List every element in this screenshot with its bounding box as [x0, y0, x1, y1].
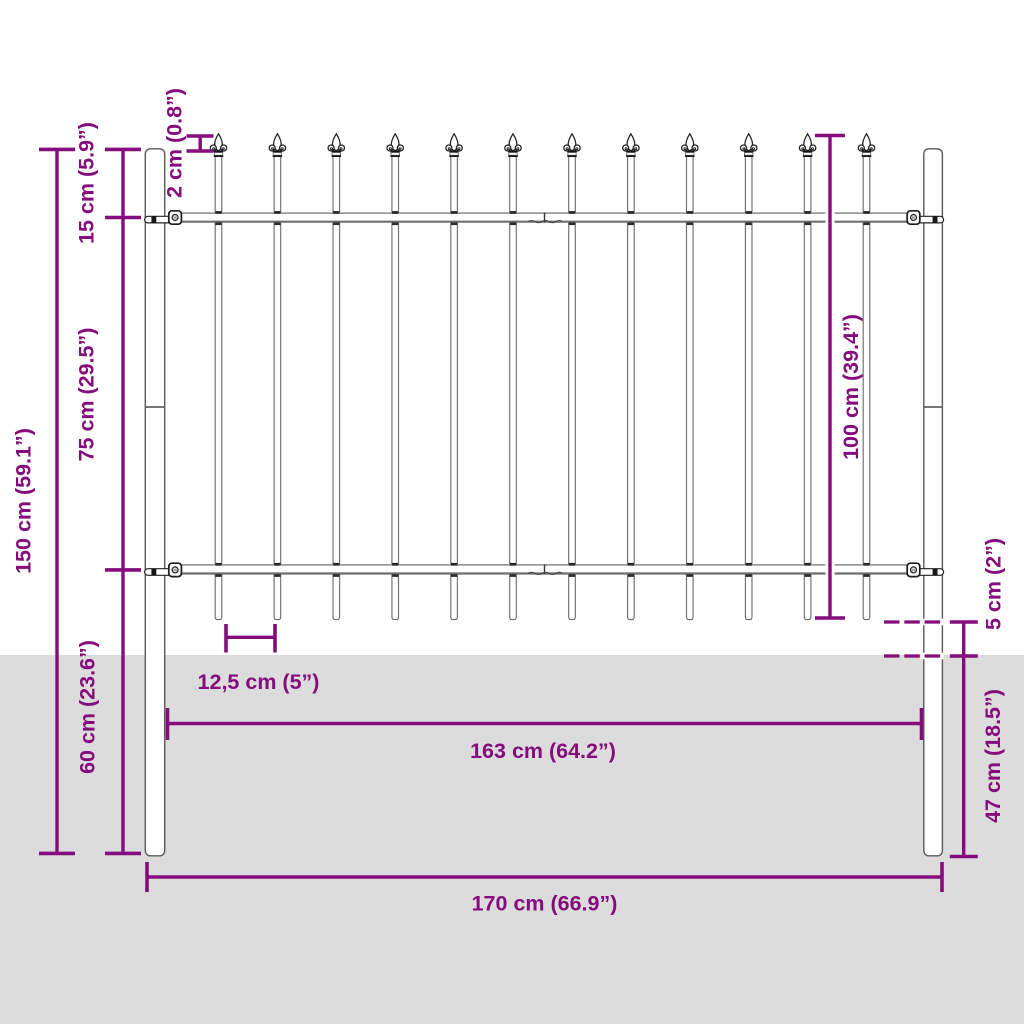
svg-text:163 cm (64.2”): 163 cm (64.2”): [470, 739, 616, 763]
svg-text:100 cm (39.4”): 100 cm (39.4”): [839, 314, 863, 460]
svg-text:5 cm (2”): 5 cm (2”): [982, 538, 1006, 630]
svg-text:2 cm (0.8”): 2 cm (0.8”): [162, 88, 186, 198]
svg-text:170 cm (66.9”): 170 cm (66.9”): [472, 892, 618, 916]
svg-text:75 cm (29.5”): 75 cm (29.5”): [74, 328, 98, 462]
svg-text:47 cm (18.5”): 47 cm (18.5”): [981, 689, 1005, 823]
svg-text:60 cm (23.6”): 60 cm (23.6”): [76, 640, 100, 774]
svg-text:12,5 cm (5”): 12,5 cm (5”): [198, 670, 320, 694]
svg-text:15 cm (5.9”): 15 cm (5.9”): [74, 122, 98, 244]
svg-text:150 cm (59.1”): 150 cm (59.1”): [12, 428, 36, 574]
